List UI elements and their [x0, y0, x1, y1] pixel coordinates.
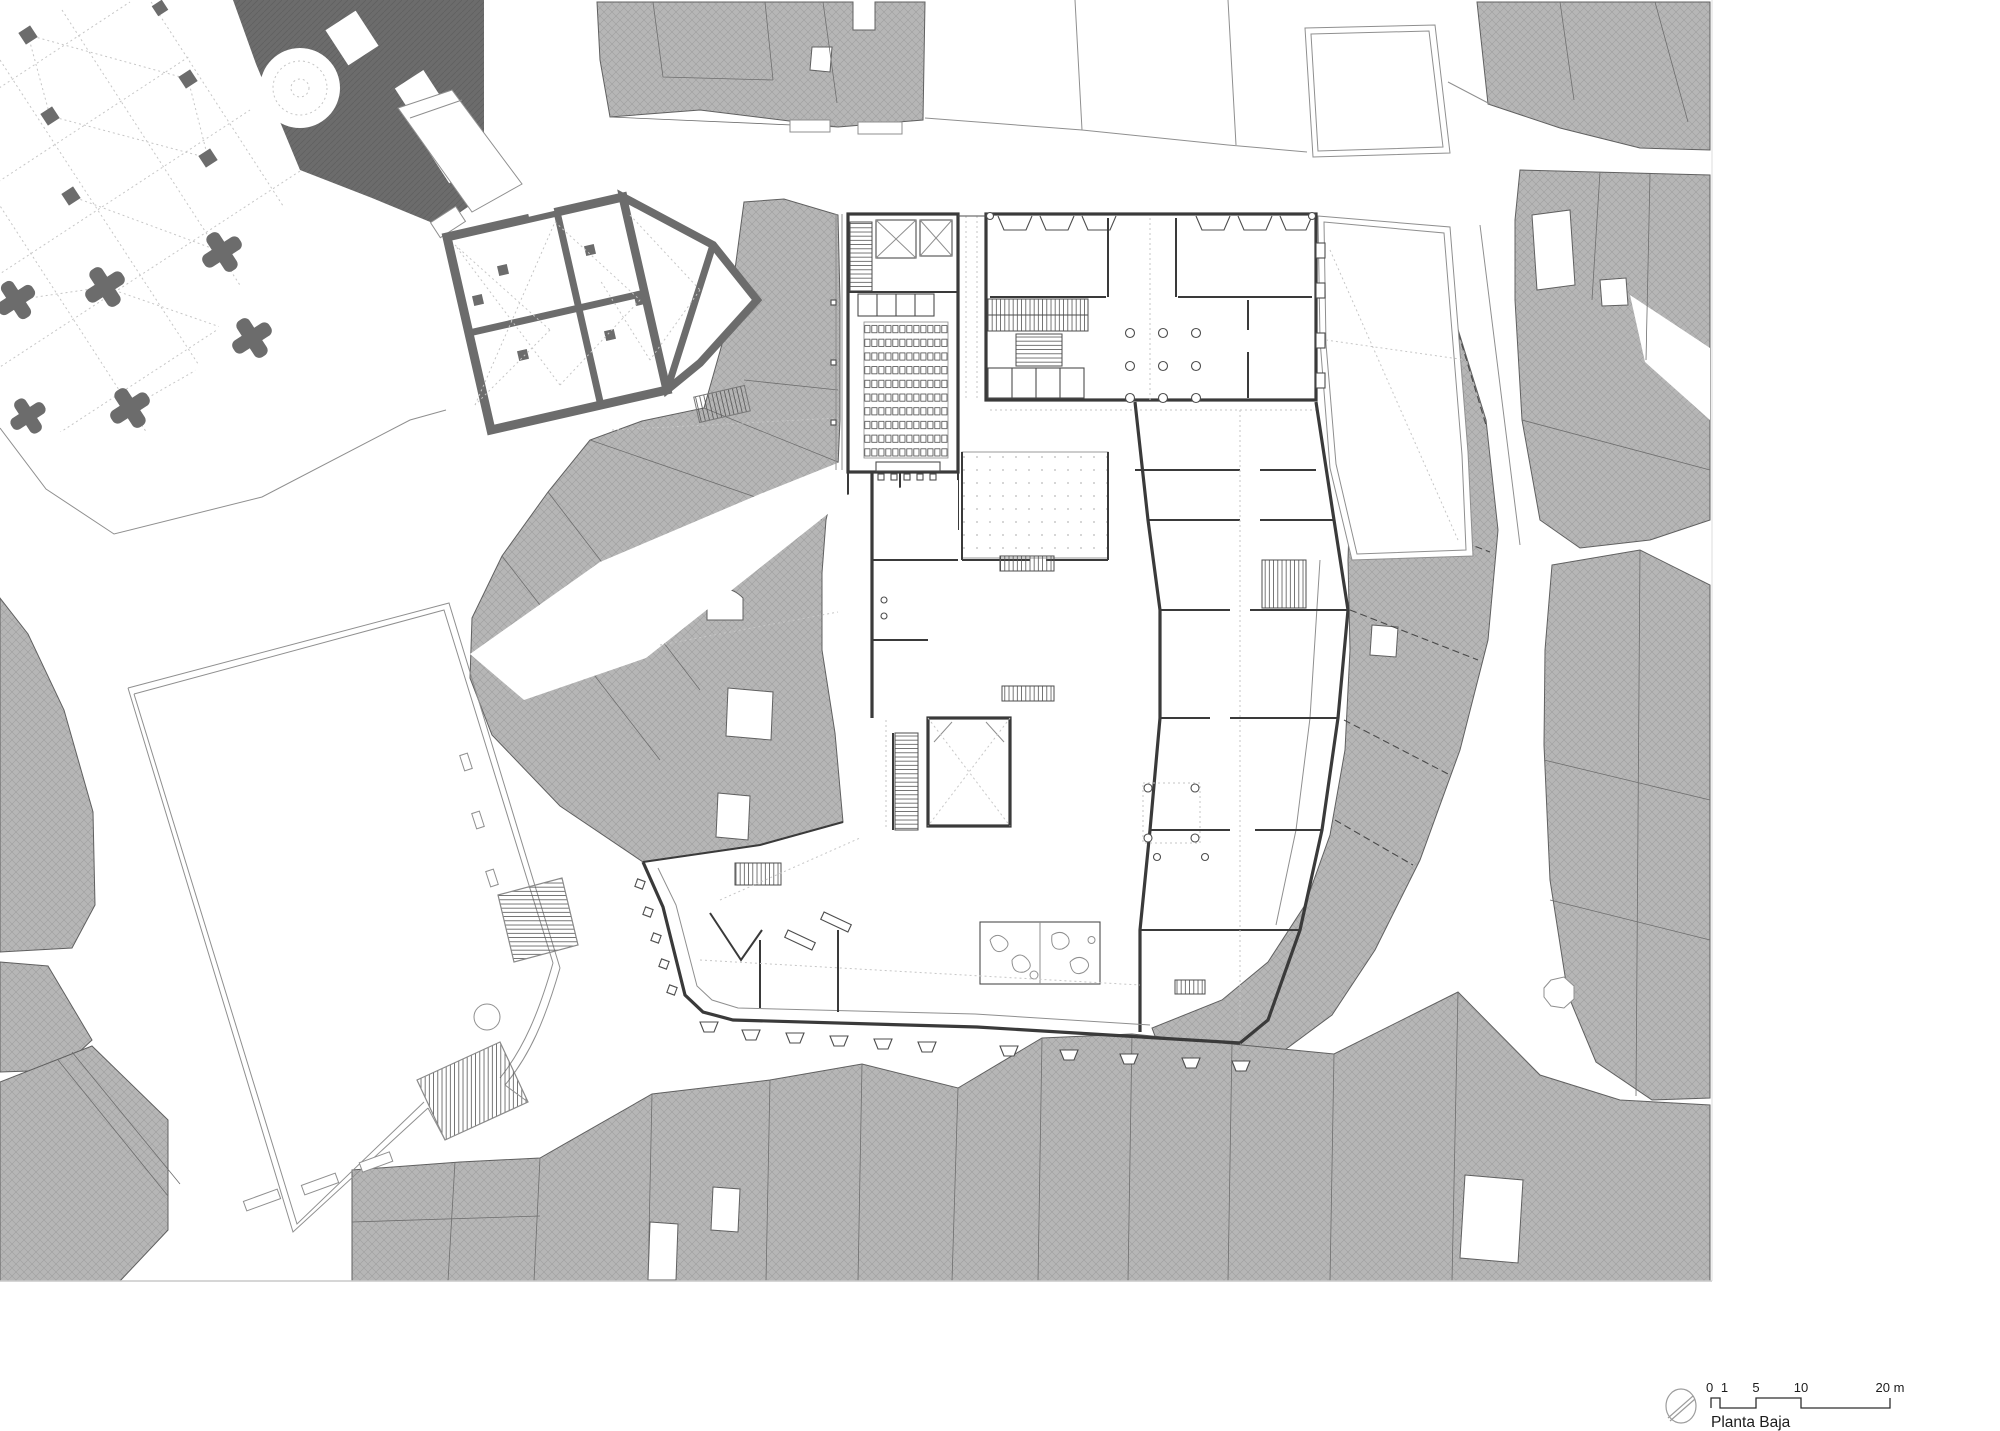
- ramp: [735, 863, 781, 885]
- cathedral-dome: [260, 48, 340, 128]
- court-stair: [1000, 556, 1054, 571]
- stair: [1175, 980, 1205, 994]
- pier: [198, 148, 217, 167]
- city-block: [0, 598, 95, 952]
- pier: [40, 106, 59, 125]
- pier: [222, 308, 282, 368]
- scale-tick-label: 0 1: [1706, 1380, 1730, 1395]
- scale-bar: 0 1 5 10 20 m: [1706, 1380, 1904, 1408]
- street-octagon: [1544, 977, 1574, 1008]
- pier: [61, 186, 80, 205]
- grand-stair: [895, 733, 918, 830]
- doorstep: [858, 122, 902, 134]
- scale-tick-label: 20 m: [1876, 1380, 1905, 1395]
- legend: 0 1 5 10 20 m Planta Baja: [1666, 1380, 1904, 1431]
- plaza-stair-upper: [498, 878, 578, 962]
- court-stair: [1002, 686, 1054, 701]
- north-arrow-icon: [1666, 1389, 1696, 1423]
- stair: [1016, 334, 1062, 366]
- corner-post: [1309, 213, 1316, 220]
- museum-north-wing: [986, 213, 1325, 411]
- plaza-stair-lower: [417, 1042, 528, 1140]
- scale-tick-label: 10: [1794, 1380, 1808, 1395]
- pier: [1, 389, 54, 442]
- excavation-area: [980, 922, 1100, 984]
- auditorium-seats: [864, 322, 948, 458]
- pier: [18, 25, 37, 44]
- museum-garden: [1318, 216, 1473, 560]
- city-block: [597, 2, 925, 127]
- ramp-circle: [474, 1004, 500, 1030]
- cathedral-plan: [0, 0, 522, 534]
- cathedral-precinct-line: [0, 410, 446, 534]
- pier: [75, 257, 135, 317]
- plaza-edge-ticks: [460, 753, 499, 887]
- speaker-chairs: [878, 474, 936, 480]
- paved-court: [962, 452, 1108, 558]
- city-block: [1544, 550, 1710, 1100]
- city-block: [0, 1046, 168, 1281]
- site-plan-sheet: 0 1 5 10 20 m Planta Baja: [0, 0, 2000, 1431]
- stair: [1262, 560, 1306, 608]
- outlined-building: [1305, 25, 1450, 157]
- pier: [192, 222, 252, 282]
- stair: [850, 222, 872, 292]
- corner-post: [987, 213, 994, 220]
- speaker-table: [876, 462, 940, 471]
- display-wall: [821, 912, 852, 932]
- museum-central-block: [845, 452, 1108, 830]
- scale-tick-label: 5: [1752, 1380, 1759, 1395]
- church-plan: [447, 197, 757, 430]
- pier: [100, 378, 160, 438]
- pier: [152, 0, 169, 16]
- site-plan-drawing: 0 1 5 10 20 m Planta Baja: [0, 0, 2000, 1431]
- doorstep: [790, 120, 830, 132]
- pier: [178, 69, 197, 88]
- se-room-columns: [1154, 854, 1209, 861]
- city-block: [352, 992, 1710, 1281]
- display-wall: [785, 930, 816, 950]
- cathedral-piers: [0, 0, 282, 443]
- plan-caption: Planta Baja: [1711, 1414, 1791, 1431]
- pier: [0, 271, 45, 329]
